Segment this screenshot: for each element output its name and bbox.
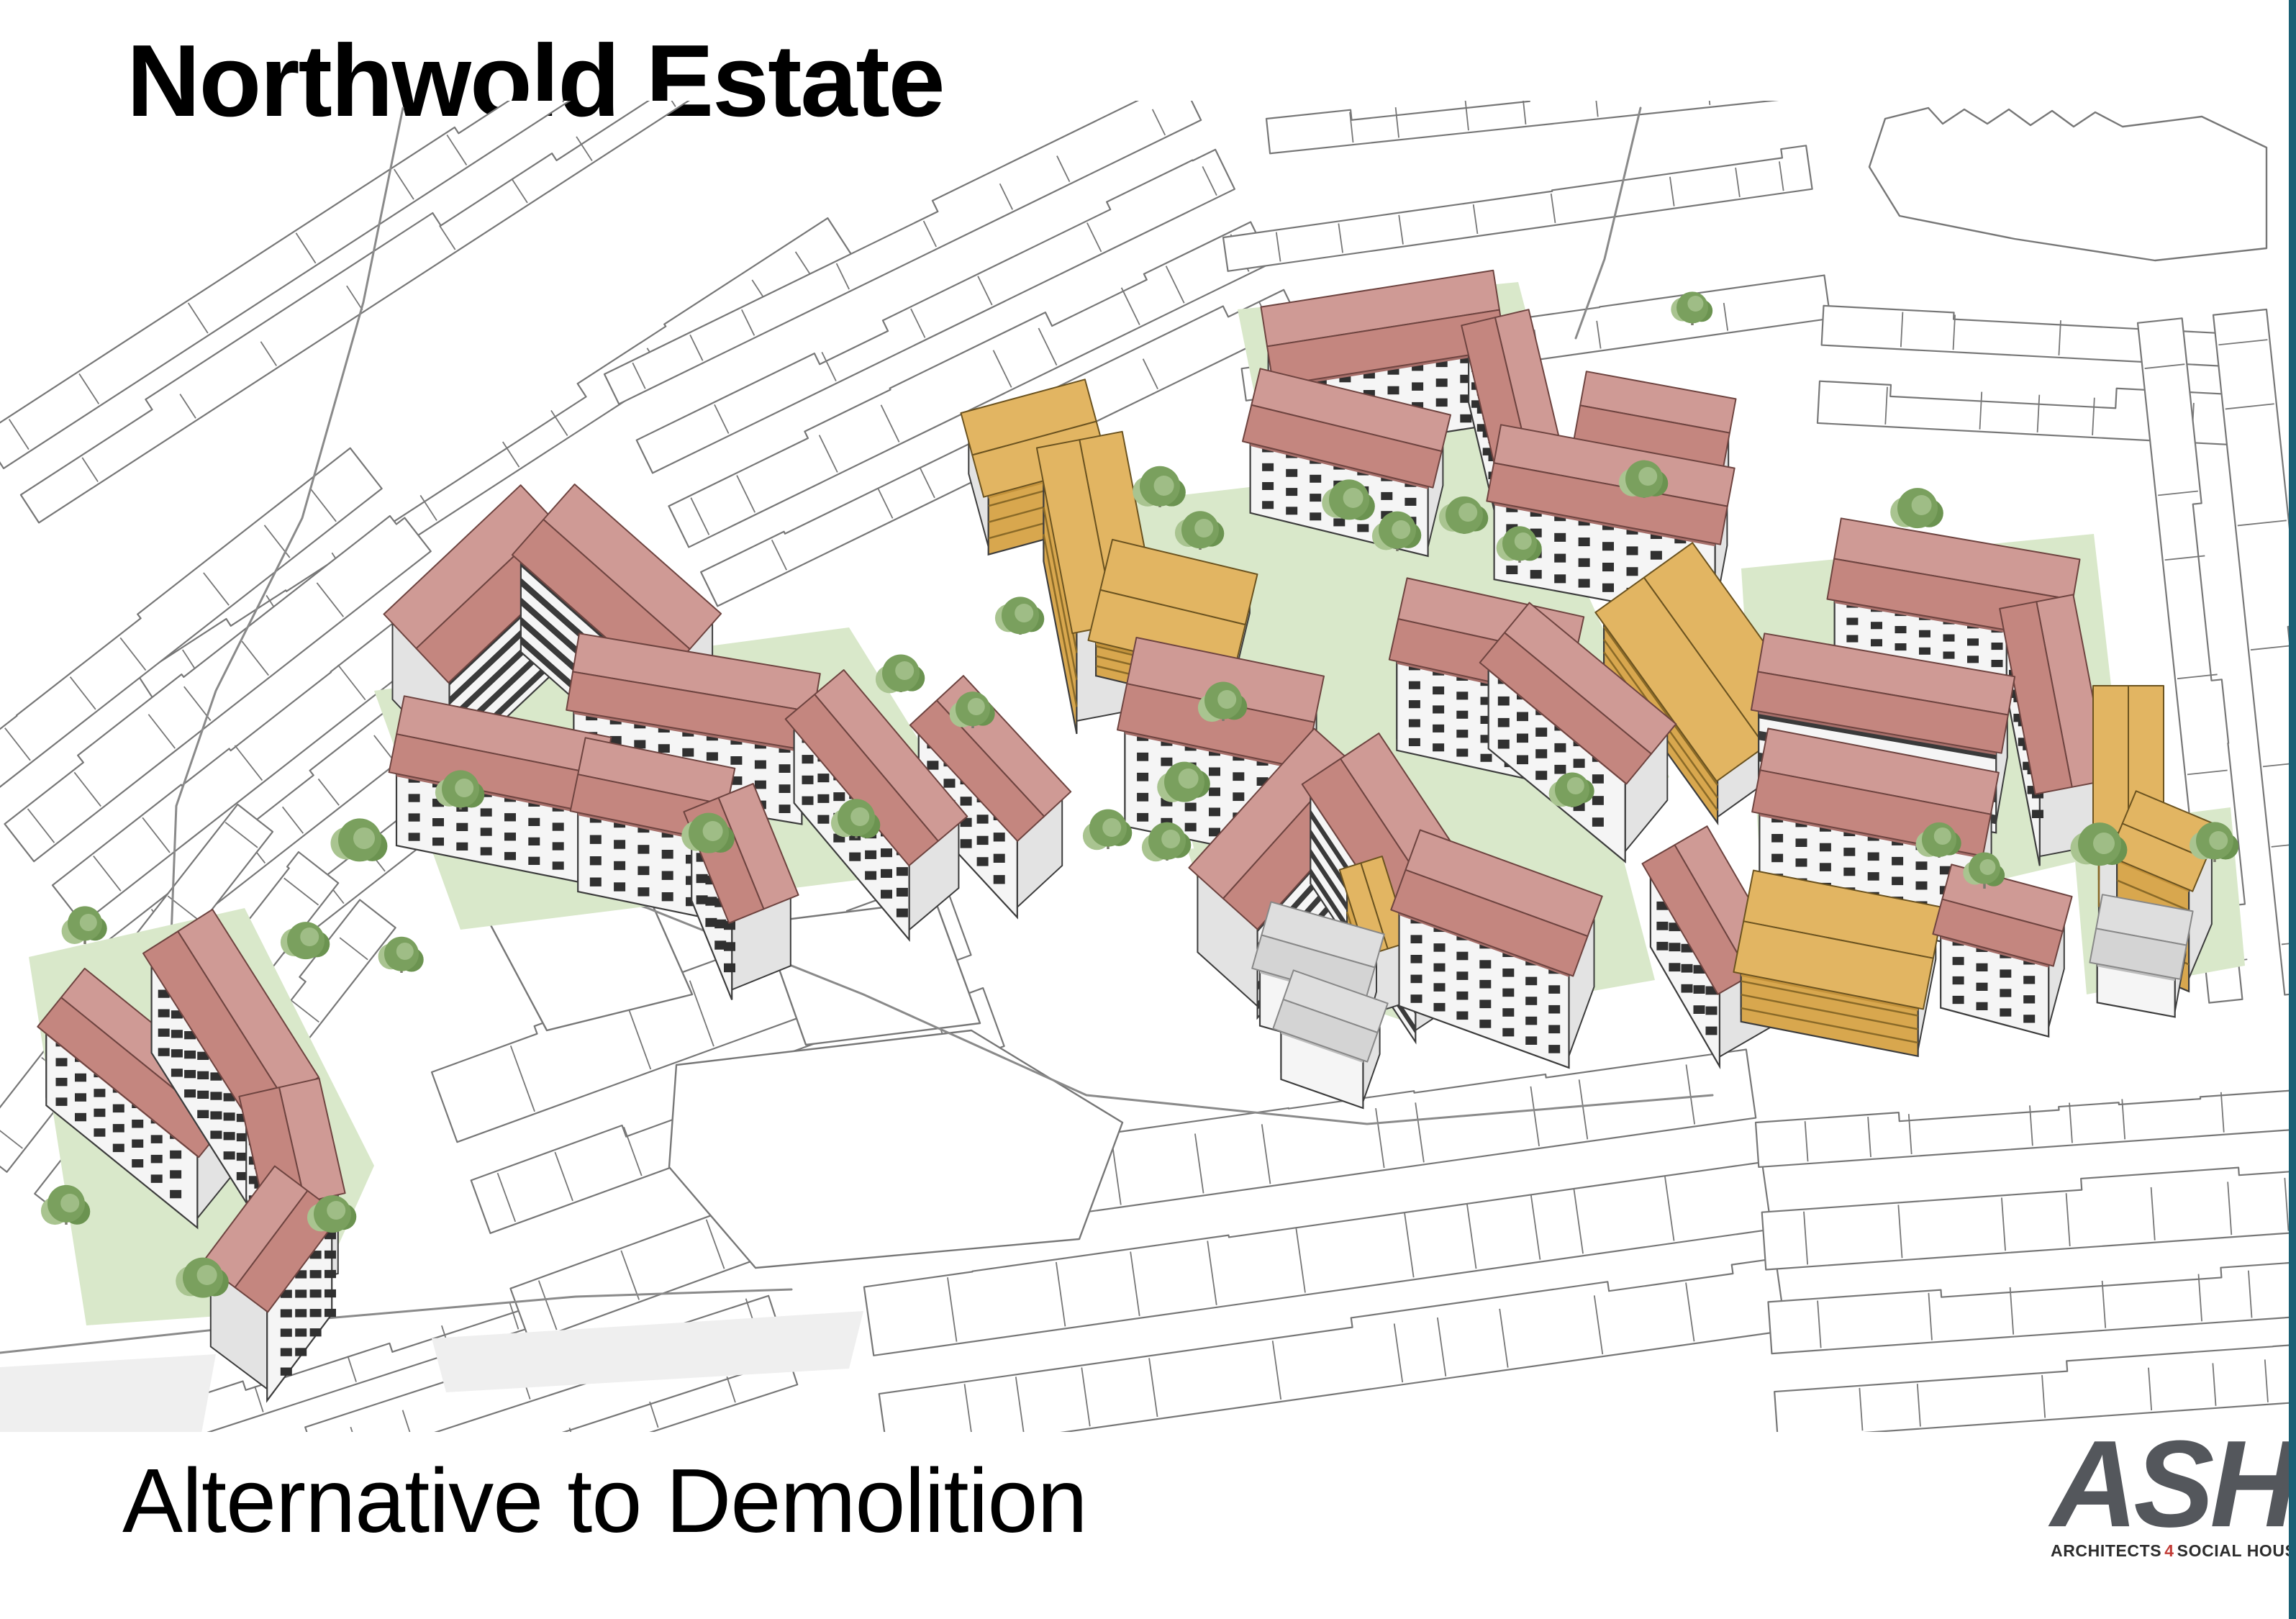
tree bbox=[62, 906, 107, 944]
street-fabric-zone bbox=[1266, 101, 1828, 153]
estate-building-red-roof bbox=[1933, 864, 2072, 1036]
street-fabric-zone bbox=[1818, 306, 2269, 447]
estate-axonometric-map bbox=[0, 101, 2296, 1432]
context-building-gray bbox=[2089, 894, 2192, 1017]
ash-logo-acronym: ASH bbox=[2051, 1427, 2246, 1541]
tree bbox=[1133, 466, 1186, 507]
page-subtitle: Alternative to Demolition bbox=[122, 1454, 1087, 1548]
tree bbox=[331, 818, 388, 861]
presentation-slide: Northwold Estate Alternative to Demoliti… bbox=[0, 0, 2296, 1619]
tree bbox=[876, 654, 925, 693]
street-fabric-zone bbox=[1756, 1084, 2296, 1432]
ash-logo: ASH ARCHITECTS4SOCIAL HOUSING bbox=[2051, 1428, 2246, 1561]
tree bbox=[1890, 488, 1943, 528]
tree bbox=[995, 597, 1044, 635]
right-accent-bar bbox=[2289, 0, 2296, 1619]
